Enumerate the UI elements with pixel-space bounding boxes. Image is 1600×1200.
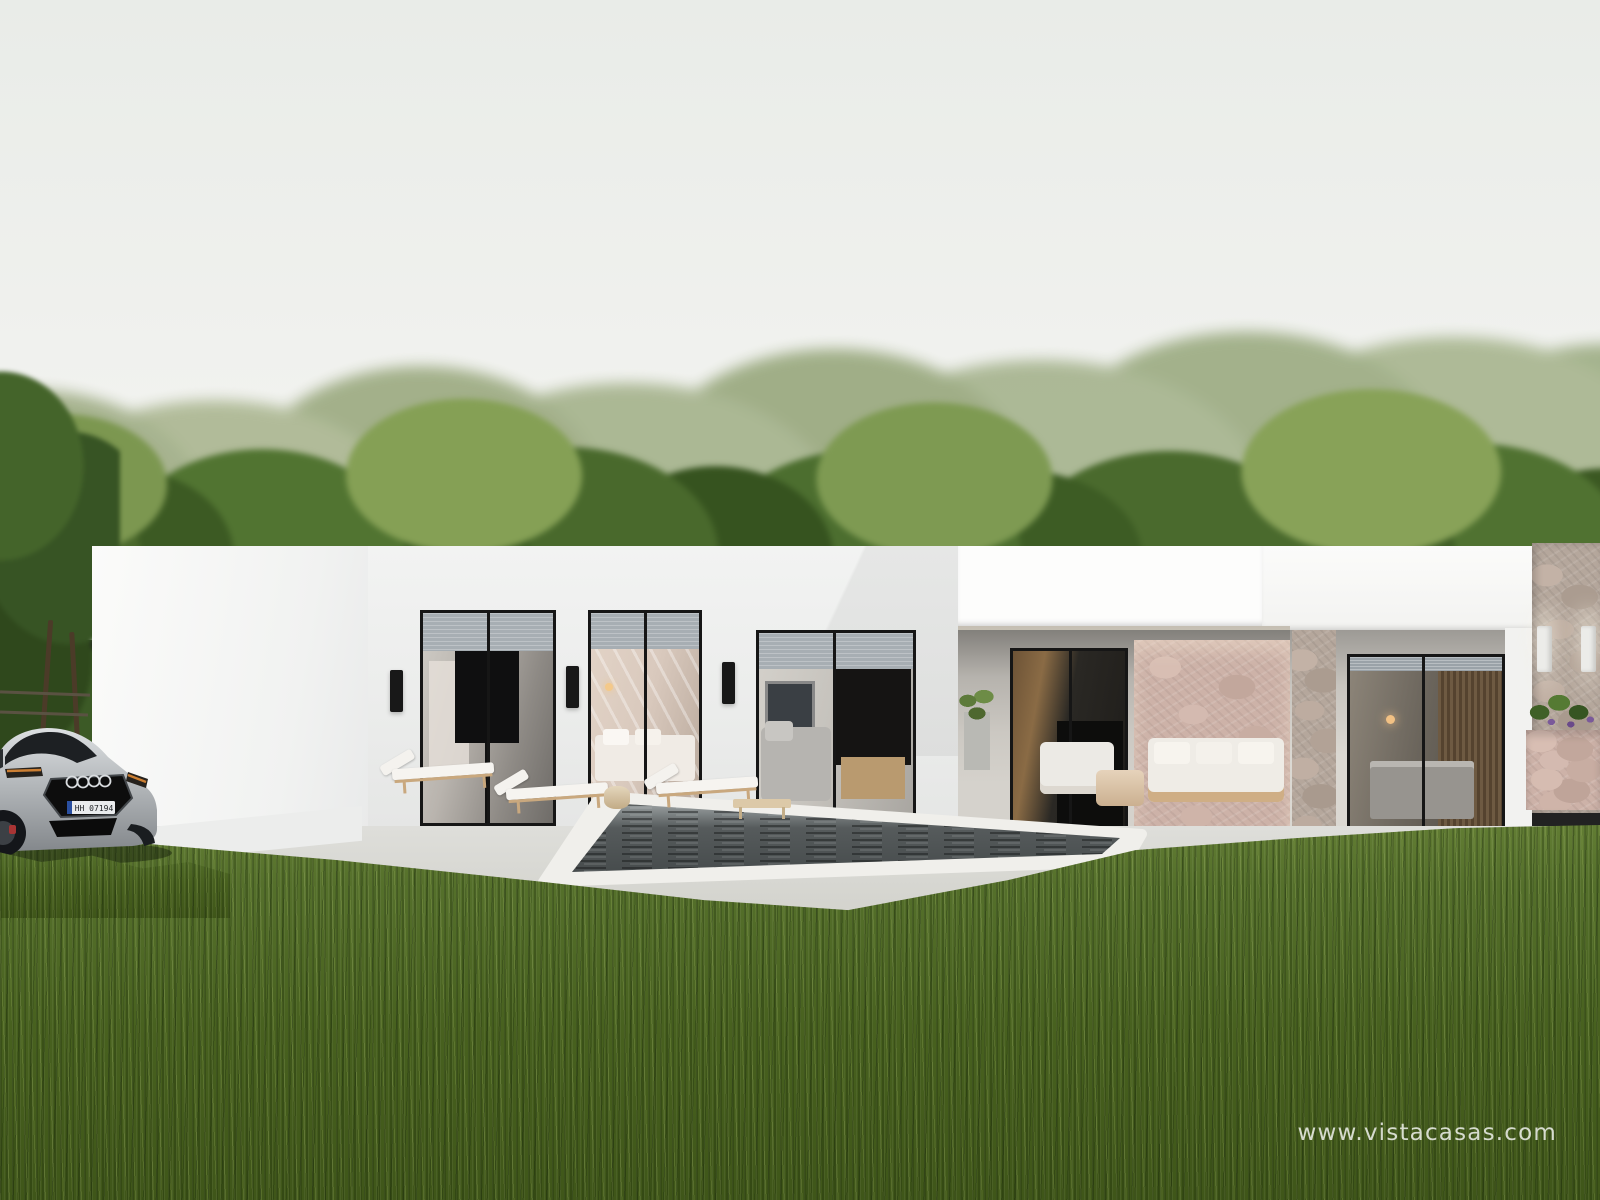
license-plate-text: HH 07194 xyxy=(75,804,114,813)
white-sconce-icon xyxy=(1581,626,1596,672)
plant-leaves xyxy=(954,684,1000,726)
brake-caliper xyxy=(9,825,16,834)
sofa-cushion xyxy=(1238,742,1274,764)
outdoor-sofa xyxy=(1148,738,1284,802)
kitchen-cabinets xyxy=(835,669,911,765)
sun-lounger xyxy=(491,768,615,814)
planter-flowers xyxy=(1524,686,1600,734)
roller-shutter xyxy=(1350,657,1502,671)
white-sconce-icon xyxy=(1537,626,1552,672)
black-sconce-icon xyxy=(722,662,735,704)
terrace-fascia xyxy=(958,546,1262,626)
wooden-bench xyxy=(733,799,791,808)
lamp-glow xyxy=(605,683,613,691)
drl-strip xyxy=(7,770,41,771)
cove-light xyxy=(958,626,1290,630)
watermark: www.vistacasas.com xyxy=(1297,1120,1557,1146)
pillow xyxy=(635,729,661,745)
right-wing-fascia xyxy=(1262,546,1534,630)
sofa-cushion xyxy=(1154,742,1190,764)
window-mullion xyxy=(487,613,490,823)
lamp-glow xyxy=(1386,715,1395,724)
black-sconce-icon xyxy=(566,666,579,708)
black-sconce-icon xyxy=(390,670,403,712)
side-stool xyxy=(604,786,630,809)
sofa-cushion xyxy=(765,721,793,741)
pillow xyxy=(603,729,629,745)
car-lower-intake xyxy=(49,818,117,837)
sofa-cushion xyxy=(1196,742,1232,764)
villa-render-scene: HH 07194 www.vistacasas.com xyxy=(0,0,1600,1200)
license-plate: HH 07194 xyxy=(67,801,115,814)
sun-lounger xyxy=(377,748,501,794)
door-mullion xyxy=(1422,657,1425,847)
silver-car: HH 07194 xyxy=(0,683,175,868)
roller-shutter xyxy=(759,633,913,669)
flower-planter-box xyxy=(1526,730,1600,810)
bedroom-glass-doors xyxy=(1347,654,1505,850)
